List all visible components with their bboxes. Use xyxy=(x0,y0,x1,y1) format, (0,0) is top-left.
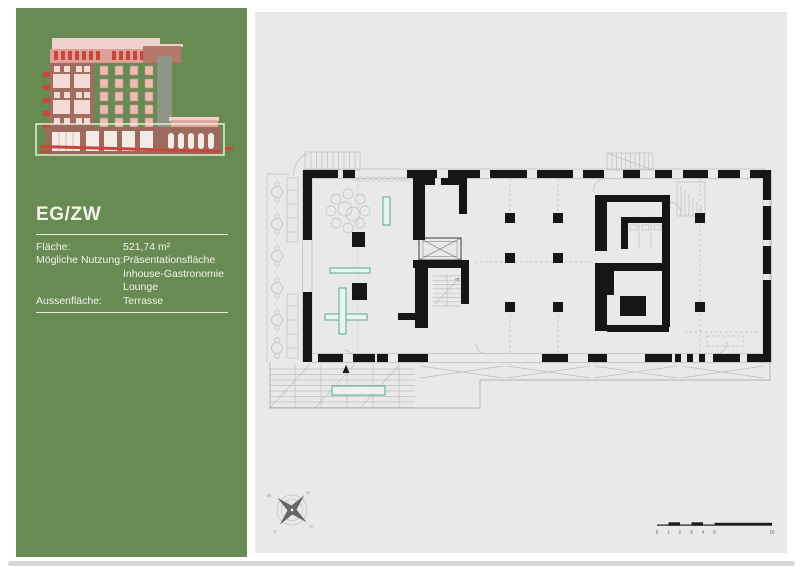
bottom-shadow-bar xyxy=(8,561,795,566)
compass-letter-n: N xyxy=(306,490,309,495)
info-label-flaeche: Fläche: xyxy=(36,241,123,254)
floor-title: EG/ZW xyxy=(36,204,101,226)
core-1-walls xyxy=(398,178,469,328)
scale-tick-label: 4 xyxy=(702,530,705,535)
main-staircase xyxy=(433,274,461,306)
info-row-nutzung: Mögliche Nutzung: Präsentationsfläche xyxy=(36,254,237,267)
compass-letter-w: W xyxy=(267,493,271,498)
facade-window-grid xyxy=(100,66,153,127)
compass-rose: N O S W xyxy=(267,490,313,534)
balcony-marks xyxy=(43,72,50,129)
plan-page: N O S W 0 1 2 3 4 5 10 xyxy=(255,12,787,553)
info-value-nutzung-1: Präsentationsfläche xyxy=(123,254,237,267)
scale-tick-label: 5 xyxy=(713,530,716,535)
info-row-flaeche: Fläche: 521,74 m² xyxy=(36,241,237,254)
scale-tick-label: 0 xyxy=(656,530,659,535)
divider-bottom xyxy=(36,312,228,313)
info-row-aussen: Aussenfläche: Terrasse xyxy=(36,295,237,308)
info-table: Fläche: 521,74 m² Mögliche Nutzung: Präs… xyxy=(36,241,237,308)
compass-letter-s: S xyxy=(274,529,277,534)
compass-letter-e: O xyxy=(309,524,313,529)
info-value-aussen: Terrasse xyxy=(123,295,237,308)
scale-tick-label: 3 xyxy=(690,530,693,535)
info-value-nutzung-2: Inhouse-Gastronomie xyxy=(123,268,237,281)
scale-bar: 0 1 2 3 4 5 10 xyxy=(656,522,775,534)
floor-plan-drawing: N O S W 0 1 2 3 4 5 10 xyxy=(255,12,787,553)
lounge-seating-group xyxy=(326,189,370,233)
core-2-walls xyxy=(595,195,670,332)
terrace-tables-west xyxy=(272,182,283,359)
building-elevation-illustration xyxy=(16,14,247,200)
info-label-nutzung: Mögliche Nutzung: xyxy=(36,254,123,267)
scale-tick-label: 10 xyxy=(770,530,775,535)
scale-tick-label: 2 xyxy=(679,530,682,535)
scale-tick-label: 1 xyxy=(667,530,670,535)
walls-group xyxy=(303,170,771,373)
brochure-page: { "sidebar": { "panel_color": "#688b53",… xyxy=(0,0,800,567)
exterior-and-furniture-lines xyxy=(267,152,772,408)
divider-top xyxy=(36,234,228,235)
info-label-aussen: Aussenfläche: xyxy=(36,295,123,308)
service-stair-lines xyxy=(677,182,705,216)
info-value-flaeche: 521,74 m² xyxy=(123,241,237,254)
info-value-nutzung-3: Lounge xyxy=(123,281,237,294)
green-sidebar-panel: EG/ZW Fläche: 521,74 m² Mögliche Nutzung… xyxy=(16,8,247,557)
exterior-stair-nw xyxy=(305,152,360,170)
elevator-shaft xyxy=(419,238,461,260)
lightwell-band-diagonals xyxy=(420,366,764,378)
